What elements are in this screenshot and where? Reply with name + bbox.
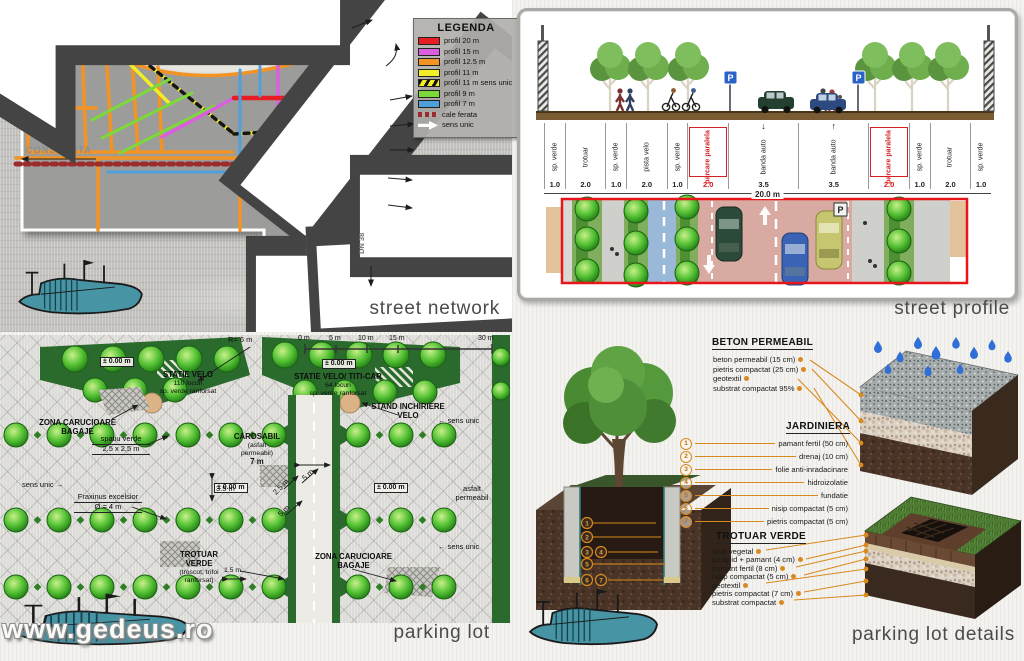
segment-width: 3.5 — [729, 180, 798, 189]
segment-width: 1.0 — [545, 180, 565, 189]
watermark: www.gedeus.ro — [2, 614, 214, 645]
green-space-label: spatiu verde 2.5 x 2.5 m — [92, 435, 150, 455]
legend-item-label: profil 7 m — [444, 100, 475, 108]
segment-label: sp. verde — [674, 143, 681, 172]
layer-number-badge: 2 — [680, 451, 692, 463]
leader-dot — [797, 386, 802, 391]
leader-dot — [780, 566, 785, 571]
detail-item: substrat compactat 95% — [713, 384, 806, 394]
profile-segment: ↓ banda auto 3.5 — [728, 123, 798, 189]
svg-text:2: 2 — [585, 535, 589, 542]
beton-permeabil-title: BETON PERMEABIL — [712, 337, 813, 350]
segment-label: sp. verde — [551, 143, 558, 172]
beton-permeabil-list: beton permeabil (15 cm) pietris compacta… — [713, 355, 806, 393]
detail-item: 1 pamant fertil (50 cm) — [680, 437, 848, 450]
legend-item: profil 9 m — [418, 90, 514, 98]
detail-item: 5 fundatie — [680, 489, 848, 502]
profile-segment: trotuar 2.0 — [565, 123, 606, 189]
planning-poster: { "captions": { "street_network": "stree… — [0, 0, 1024, 658]
detail-item: nisip compactat (5 cm) — [712, 573, 803, 582]
svg-text:P: P — [837, 205, 843, 215]
profile-segment: parcare paralela 2.0 — [868, 123, 909, 189]
cross-section: P P — [536, 25, 994, 120]
detail-item: substrat compactat — [712, 598, 803, 607]
parking-lot-drawing — [0, 335, 510, 623]
street-profile-panel: P P — [517, 8, 1018, 301]
profile-segment: sp. verde 1.0 — [667, 123, 688, 189]
legend-item-label: profil 9 m — [444, 90, 475, 98]
segment-width: 2.0 — [869, 180, 909, 189]
leader-dot — [744, 376, 749, 381]
svg-text:7: 7 — [599, 578, 603, 585]
detail-item: 3 folie anti-inradacinare — [680, 463, 848, 476]
legend-item-label: profil 20 m — [444, 37, 479, 45]
legend-item: profil 15 m — [418, 48, 514, 56]
svg-text:3: 3 — [585, 550, 589, 557]
legend-color-chip — [418, 100, 440, 108]
velo-station-left-label: STATIE VELO 110 locuri sp. verde ranfors… — [138, 371, 238, 396]
left-arrow-glyph: ← — [438, 416, 446, 425]
scale-tick-30: 30 m — [478, 335, 494, 342]
legend-color-chip — [418, 112, 438, 117]
leader-line — [695, 495, 818, 496]
segment-width: 1.0 — [971, 180, 991, 189]
legend-item: profil 7 m — [418, 100, 514, 108]
profile-segment: sp. verde 1.0 — [605, 123, 626, 189]
jardiniera-title: JARDINIERA — [786, 421, 850, 434]
scale-tick-0: 0 m — [298, 335, 310, 342]
legend-item: cale ferata — [418, 111, 514, 119]
layer-number-badge: 1 — [680, 438, 692, 450]
permeable-asphalt-label: asfalt permeabil — [446, 485, 498, 502]
left-wall-hatch — [538, 41, 548, 111]
left-pole — [541, 25, 544, 43]
level-marker: ± 0.00 m — [100, 357, 134, 367]
detail-item: pamant fertil (8 cm) — [712, 564, 803, 573]
layer-number-badge: 7 — [680, 516, 692, 528]
parking-lot-details-panel: 1 2 3 4 5 6 7 — [516, 335, 1024, 658]
plan-beige-right — [950, 201, 967, 257]
leader-dot — [779, 600, 784, 605]
right-pole — [987, 25, 990, 43]
svg-text:P: P — [727, 73, 733, 83]
detail-item: beton permeabil (15 cm) — [713, 355, 806, 365]
legend-color-chip — [418, 69, 440, 77]
segment-width: 1.0 — [606, 180, 626, 189]
segment-width: 1.0 — [668, 180, 688, 189]
plan-p-sign: P — [834, 203, 847, 216]
layer-number-badge: 4 — [680, 477, 692, 489]
legend-title: LEGENDA — [418, 22, 514, 34]
ship-sketch — [14, 258, 149, 326]
level-marker: ± 0.00 m — [322, 359, 356, 369]
lane-direction-arrow: ↑ — [831, 121, 836, 131]
legend-items: profil 20 m profil 15 m profil 12.5 m pr… — [418, 37, 514, 130]
level-marker: ± 0.00 m — [374, 483, 408, 493]
legend-item-label: profil 11 m sens unic — [444, 79, 512, 87]
left-arrow-glyph: ← — [438, 542, 446, 551]
detail-item: geogrid + pamant (4 cm) — [712, 556, 803, 565]
plan-view: P — [546, 195, 967, 287]
luggage-zone-label: ZONA CARUCIOARE BAGAJE — [306, 553, 401, 571]
jardiniera-list: 1 pamant fertil (50 cm) 2 drenaj (10 cm)… — [680, 437, 848, 528]
legend-color-chip — [418, 121, 438, 130]
profile-segment: parcare paralela 2.0 — [687, 123, 728, 189]
detail-item: 4 hidroizolatie — [680, 476, 848, 489]
legend-color-chip — [418, 79, 440, 87]
tree-species-label: Fraxinus excelsior Ø = 4 m — [74, 493, 142, 513]
permeable-concrete-block — [860, 337, 1018, 495]
legend-item-label: profil 11 m — [444, 69, 478, 77]
caption-parking-lot: parking lot — [290, 622, 490, 644]
right-green-strip — [492, 335, 510, 623]
detail-item: geotextil — [713, 374, 806, 384]
leader-dot — [801, 367, 806, 372]
tree-row-c-right — [346, 575, 456, 599]
profile-total-width: 20.0 m — [544, 193, 991, 194]
legend-item-label: sens unic — [442, 121, 474, 129]
dim-3-5: 3.5 m — [216, 485, 235, 494]
leader-dot — [796, 591, 801, 596]
parking-sign-left: P — [724, 71, 737, 111]
leader-line — [695, 456, 796, 457]
caption-parking-lot-details: parking lot details — [760, 624, 1015, 646]
leader-line — [695, 469, 772, 470]
legend-item-label: cale ferata — [442, 111, 477, 119]
detail-item: strat vegetal — [712, 547, 803, 556]
detail-item: geotextil — [712, 581, 803, 590]
carriageway-width: 7 m — [228, 458, 286, 467]
carriageway-label: CAROSABIL (asfalt permeabil) 7 m — [228, 433, 286, 467]
segment-width: 1.0 — [910, 180, 930, 189]
profile-segment: trotuar 2.0 — [930, 123, 971, 189]
segment-label: banda auto — [760, 139, 767, 174]
segment-width: 2.0 — [627, 180, 667, 189]
leader-line — [695, 443, 775, 444]
legend-item: sens unic — [418, 121, 514, 130]
legend-item: profil 11 m — [418, 69, 514, 77]
tree-row-a-right — [346, 423, 456, 447]
profile-segment: sp. verde 1.0 — [544, 123, 565, 189]
parking-lot-panel: 0 m 5 m 10 m 15 m 30 m R= 6 m ± 0.00 m ±… — [0, 335, 510, 623]
plan-beige-left — [546, 207, 562, 273]
legend-color-chip — [418, 48, 440, 56]
scale-tick-15: 15 m — [389, 335, 405, 342]
layer-number-badge: 3 — [680, 464, 692, 476]
one-way-label: ← sens unic — [438, 543, 479, 552]
total-width-value: 20.0 m — [751, 190, 784, 199]
one-way-label: sens unic → — [22, 481, 63, 490]
layer-number-badge: 6 — [680, 503, 692, 515]
detail-item: pietris compactat (7 cm) — [712, 590, 803, 599]
dim-1-5: 1.5 m — [224, 567, 241, 575]
scale-tick-10: 10 m — [358, 335, 374, 342]
caption-street-network: street network — [300, 298, 500, 320]
svg-text:5: 5 — [585, 562, 589, 569]
segment-width: 2.0 — [688, 180, 728, 189]
segment-label: sp. verde — [978, 143, 985, 172]
detail-item: 6 nisip compactat (5 cm) — [680, 502, 848, 515]
detail-item: 7 pietris compactat (5 cm) — [680, 515, 848, 528]
cyclists — [662, 88, 699, 111]
lane-direction-arrow: ↓ — [761, 121, 766, 131]
segment-label: sp. verde — [613, 143, 620, 172]
dn38-label: DN 38 — [357, 233, 366, 254]
leader-dot — [791, 574, 796, 579]
detail-item: pietris compactat (25 cm) — [713, 365, 806, 375]
segment-label: parcare paralela — [705, 130, 712, 184]
tree-row-b-right — [346, 508, 456, 532]
profile-segment: pista velo 2.0 — [626, 123, 667, 189]
legend-item: profil 12.5 m — [418, 58, 514, 66]
trotuar-verde-list: strat vegetal geogrid + pamant (4 cm) pa… — [712, 547, 803, 607]
layer-number-badge: 5 — [680, 490, 692, 502]
segment-width: 2.0 — [566, 180, 606, 189]
caption-street-profile: street profile — [810, 298, 1010, 320]
detail-item: 2 drenaj (10 cm) — [680, 450, 848, 463]
car-dark — [758, 91, 794, 113]
legend-item: profil 11 m sens unic — [418, 79, 514, 87]
profile-segment: sp. verde 1.0 — [909, 123, 930, 189]
velo-station-right-label: STATIE VELO/ TITI-CAR 64 locuri sp. verd… — [278, 373, 398, 398]
legend-color-chip — [418, 37, 440, 45]
legend-color-chip — [418, 90, 440, 98]
segment-label: sp. verde — [916, 143, 923, 172]
green-sidewalk-block — [865, 497, 1021, 619]
scale-tick-5: 5 m — [329, 335, 341, 342]
green-sidewalk-label: TROTUAR VERDE (troscot; trifoi ranforsat… — [170, 551, 228, 585]
legend-item-label: profil 12.5 m — [444, 58, 485, 66]
segment-label: trotuar — [582, 147, 589, 167]
segment-label: banda auto — [830, 139, 837, 174]
leader-dot — [756, 549, 761, 554]
segment-width: 2.0 — [931, 180, 971, 189]
right-arrow-glyph: → — [56, 480, 64, 489]
segment-label: parcare paralela — [886, 130, 893, 184]
leader-dot — [743, 583, 748, 588]
map-legend: LEGENDA profil 20 m profil 15 m profil 1… — [413, 18, 519, 138]
legend-color-chip — [418, 58, 440, 66]
leader-dot — [798, 557, 803, 562]
radius-label: R= 6 m — [228, 336, 252, 345]
leader-line — [695, 521, 764, 522]
profile-dimension-band: sp. verde 1.0 trotuar 2.0 sp. verde 1.0 … — [544, 123, 991, 189]
svg-text:6: 6 — [585, 578, 589, 585]
segment-label: trotuar — [947, 147, 954, 167]
profile-segment: ↑ banda auto 3.5 — [798, 123, 868, 189]
svg-text:4: 4 — [599, 550, 603, 557]
segment-width: 3.5 — [799, 180, 868, 189]
bike-lane — [648, 199, 676, 283]
profile-segment: sp. verde 1.0 — [970, 123, 991, 189]
leader-line — [695, 508, 769, 509]
right-wall-hatch — [984, 41, 994, 111]
segment-label: pista velo — [643, 142, 650, 172]
svg-text:P: P — [855, 73, 861, 83]
one-way-label: ← sens unic — [438, 417, 479, 426]
tree-canopy — [563, 346, 676, 444]
svg-text:1: 1 — [585, 521, 589, 528]
legend-item: profil 20 m — [418, 37, 514, 45]
parking-sign-right: P — [852, 71, 865, 111]
legend-item-label: profil 15 m — [444, 48, 479, 56]
trotuar-verde-title: TROTUAR VERDE — [716, 531, 806, 544]
leader-dot — [798, 357, 803, 362]
leader-line — [695, 482, 804, 483]
